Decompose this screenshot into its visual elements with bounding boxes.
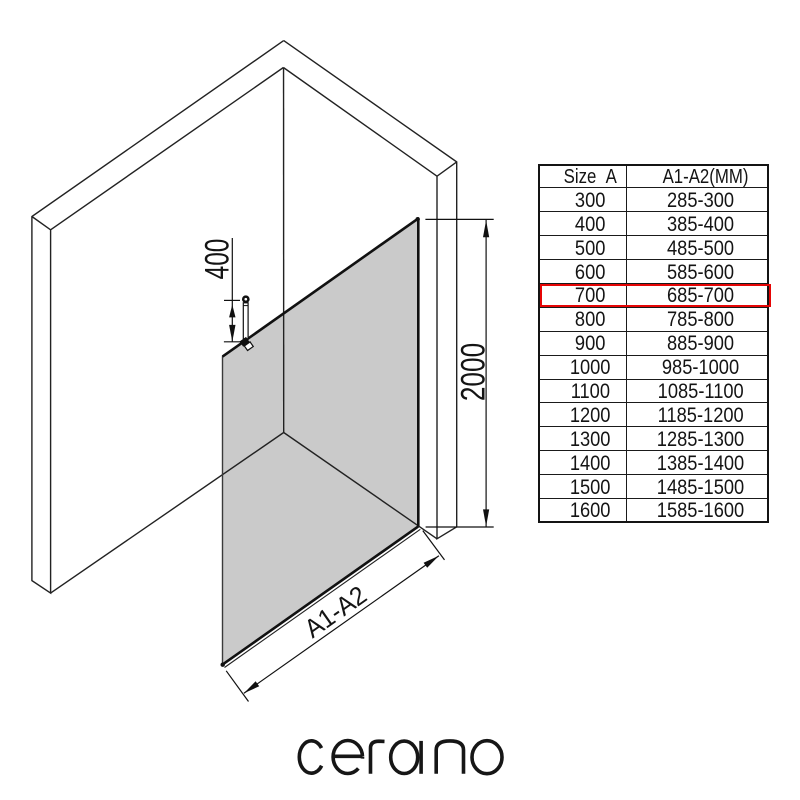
svg-text:400: 400: [198, 239, 236, 280]
svg-text:2000: 2000: [454, 343, 492, 401]
